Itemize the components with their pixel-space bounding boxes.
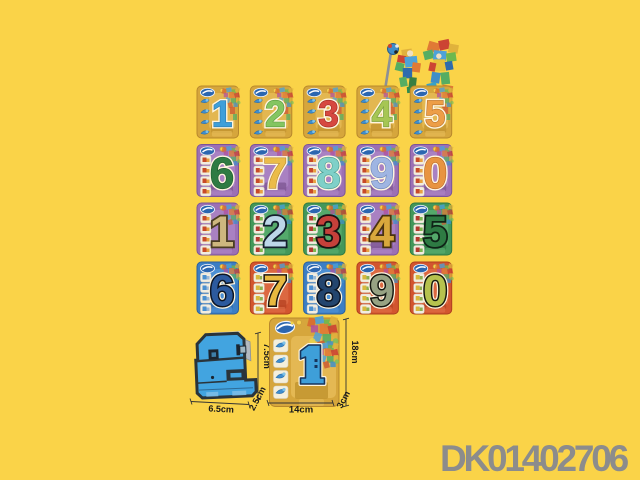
svg-text:7: 7 [263, 267, 287, 316]
svg-text:2: 2 [263, 208, 287, 257]
svg-text:9: 9 [370, 267, 394, 316]
svg-text:4: 4 [372, 94, 393, 135]
svg-text:3: 3 [316, 208, 340, 257]
svg-text:DK01402706: DK01402706 [440, 438, 629, 479]
svg-text:9: 9 [370, 149, 394, 198]
svg-text:0: 0 [423, 149, 447, 198]
svg-text:1: 1 [212, 94, 233, 135]
svg-text:6: 6 [210, 267, 234, 316]
svg-text:5: 5 [423, 208, 447, 257]
svg-text:0: 0 [423, 267, 447, 316]
svg-text:18cm: 18cm [350, 340, 360, 363]
svg-text:14cm: 14cm [289, 405, 313, 416]
svg-text:6: 6 [210, 149, 234, 198]
svg-text:6.5cm: 6.5cm [208, 403, 234, 414]
svg-text:8: 8 [316, 267, 340, 316]
svg-text:1: 1 [210, 208, 234, 257]
svg-text:8: 8 [316, 149, 340, 198]
svg-text:4: 4 [370, 208, 395, 257]
svg-text:5: 5 [425, 94, 446, 135]
svg-text:7: 7 [263, 149, 287, 198]
svg-text:3: 3 [318, 94, 339, 135]
svg-text:2: 2 [265, 94, 286, 135]
